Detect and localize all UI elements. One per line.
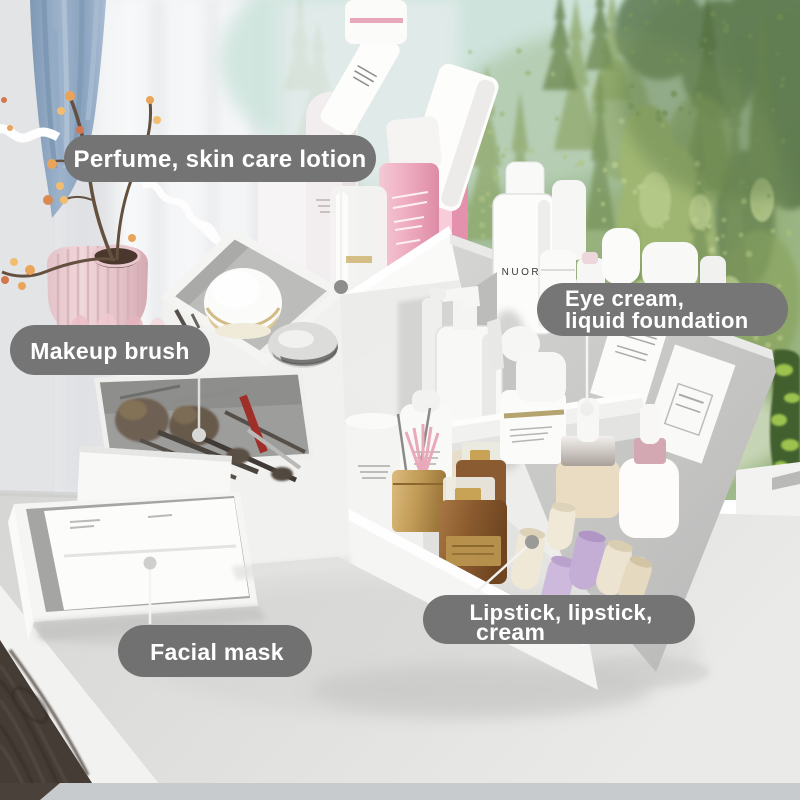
svg-text:cream: cream [476, 619, 545, 645]
svg-text:liquid foundation: liquid foundation [565, 308, 749, 333]
svg-text:NUORI: NUORI [502, 267, 547, 278]
svg-text:Facial mask: Facial mask [150, 639, 284, 665]
svg-text:Perfume, skin care lotion: Perfume, skin care lotion [74, 146, 367, 173]
svg-text:Makeup brush: Makeup brush [30, 338, 190, 364]
